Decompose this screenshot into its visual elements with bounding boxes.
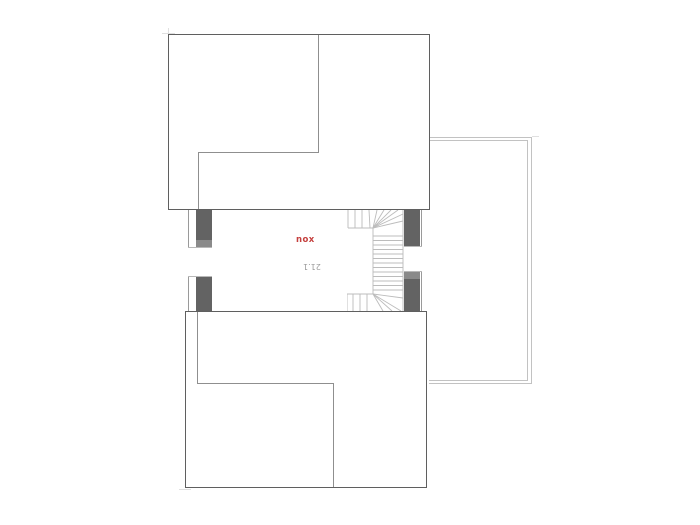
wall-pier-southwest — [196, 277, 212, 311]
terrace-edge-top-outer — [430, 137, 532, 138]
lower-block-partition-vertical — [197, 312, 198, 383]
corner-tick — [179, 489, 191, 490]
corner-tick — [532, 136, 539, 137]
room-label: nox — [296, 235, 315, 245]
terrace-edge-bottom-outer — [429, 383, 532, 384]
upper-block-outline — [168, 34, 430, 210]
window-west — [188, 247, 212, 277]
terrace-edge-right-outer — [531, 137, 532, 384]
lintel-west — [196, 240, 212, 247]
lower-block-partition-vertical-lower — [333, 383, 334, 487]
terrace-edge-bottom-inner — [429, 380, 528, 381]
staircase-drawing — [347, 210, 404, 311]
upper-block-partition-vertical-lower — [198, 152, 199, 209]
upper-block-partition-horizontal — [198, 152, 319, 153]
terrace-edge-top-inner — [430, 140, 528, 141]
area-label: 21.1 — [303, 262, 321, 271]
lower-block-outline — [185, 311, 427, 488]
lintel-east — [404, 272, 420, 279]
upper-block-partition-vertical — [318, 35, 319, 152]
lower-block-partition-horizontal — [197, 383, 333, 384]
window-east — [404, 246, 422, 272]
terrace-edge-right-inner — [527, 140, 528, 381]
wall-pier-southeast — [404, 279, 420, 311]
wall-pier-northeast — [404, 210, 420, 246]
floor-plan-canvas: nox 21.1 — [0, 0, 700, 525]
